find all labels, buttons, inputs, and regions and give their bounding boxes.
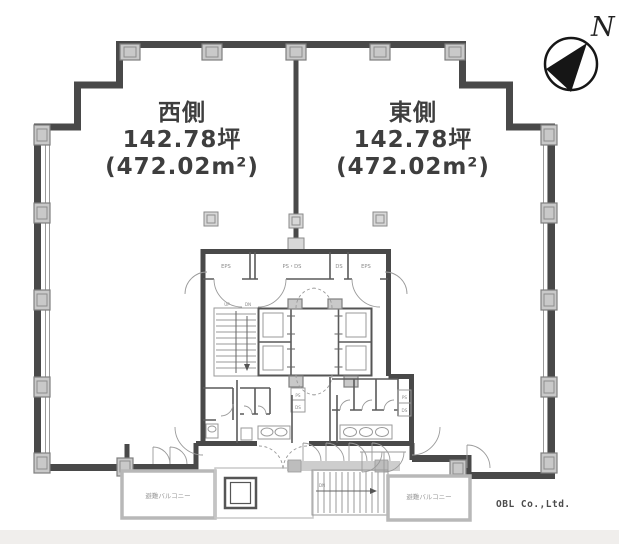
east-unit-name: 東側 <box>389 100 437 126</box>
interior-mullion <box>204 212 218 226</box>
room-label-ps-ds: PS・DS <box>283 264 302 270</box>
column <box>34 290 50 310</box>
west-unit-name: 西側 <box>158 100 206 126</box>
room-label-eps-left: EPS <box>221 264 231 270</box>
interior-mullion <box>288 238 304 250</box>
ds-label: DS <box>295 405 301 410</box>
balcony-right: 避難バルコニー <box>388 476 470 520</box>
balcony-right-label: 避難バルコニー <box>406 492 451 501</box>
compass: N <box>545 12 616 92</box>
column <box>541 377 557 397</box>
column <box>370 44 390 60</box>
room-label-eps-right: EPS <box>361 264 371 270</box>
balcony-left-label: 避難バルコニー <box>145 491 190 500</box>
credit-text: OBL Co.,Ltd. <box>496 499 571 510</box>
column <box>120 44 140 60</box>
compass-needle <box>546 43 587 92</box>
compass-north-label: N <box>590 12 616 43</box>
column <box>202 44 222 60</box>
west-unit-tsubo: 142.78坪 <box>123 127 242 153</box>
column <box>34 453 50 473</box>
exterior-stair: DN <box>312 470 388 515</box>
interior-mullion <box>289 214 303 228</box>
west-unit-sqm: (472.02m²) <box>105 154 259 180</box>
column <box>286 44 306 60</box>
stair-down-label: DN <box>245 302 251 307</box>
interior-mullion <box>373 212 387 226</box>
east-unit-tsubo: 142.78坪 <box>354 127 473 153</box>
floor-plan-canvas: EPS PS・DS DS EPS UP DN <box>0 0 619 544</box>
ps-label: PS <box>295 393 301 398</box>
footer-band <box>0 530 619 544</box>
floorplan-page: EPS PS・DS DS EPS UP DN <box>0 0 619 544</box>
emergency-elevator <box>225 478 256 508</box>
column <box>34 203 50 223</box>
stair-down-exterior-label: DN <box>319 483 325 488</box>
ps-label: PS <box>402 395 408 400</box>
ev-door-post <box>288 299 302 309</box>
ev-door-post <box>344 376 358 387</box>
east-unit-sqm: (472.02m²) <box>336 154 490 180</box>
column <box>34 377 50 397</box>
room-label-ds: DS <box>335 264 342 270</box>
column <box>34 125 50 145</box>
column <box>541 203 557 223</box>
column <box>541 125 557 145</box>
column <box>445 44 465 60</box>
column <box>541 290 557 310</box>
balcony-left: 避難バルコニー <box>122 471 215 518</box>
column <box>541 453 557 473</box>
ds-label: DS <box>402 408 408 413</box>
stair-up-label: UP <box>224 302 230 307</box>
